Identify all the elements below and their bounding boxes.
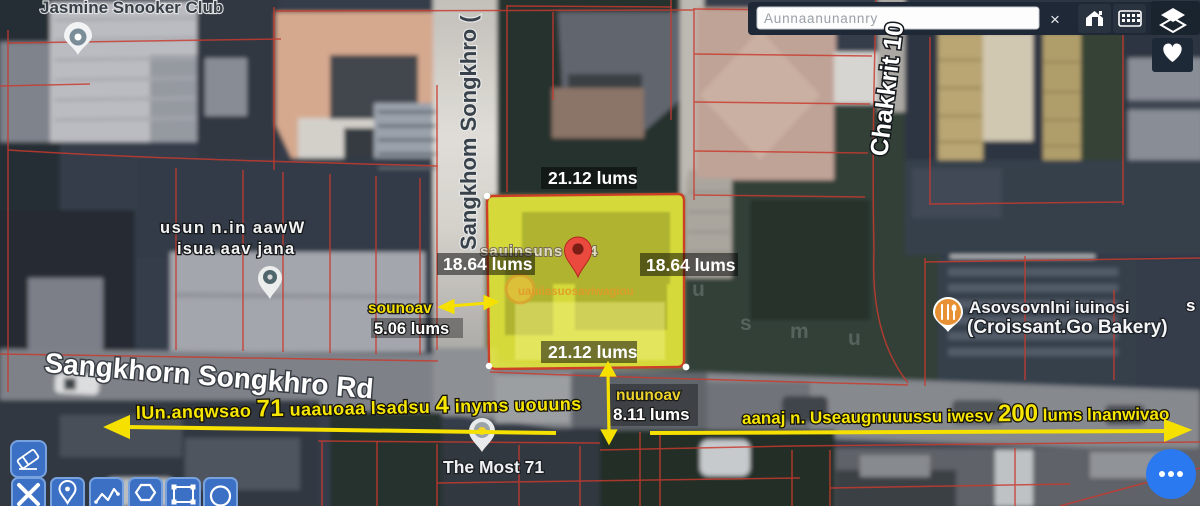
svg-text:isua aav jana: isua aav jana	[177, 240, 295, 258]
svg-text:usun n.in aawW: usun n.in aawW	[160, 219, 306, 237]
svg-text:×: ×	[1050, 10, 1060, 29]
svg-text:21.12 lums: 21.12 lums	[548, 342, 638, 362]
svg-text:nuunoav: nuunoav	[616, 387, 681, 404]
svg-text:18.64 lums: 18.64 lums	[646, 255, 736, 275]
svg-text:uauiiasuosaviwagiou: uauiiasuosaviwagiou	[518, 286, 634, 298]
svg-text:8.11 lums: 8.11 lums	[613, 405, 690, 424]
svg-text:21.12 lums: 21.12 lums	[548, 168, 638, 188]
svg-text:u: u	[692, 278, 705, 301]
svg-text:18.64 lums: 18.64 lums	[443, 254, 533, 274]
svg-text:(Croissant.Go Bakery): (Croissant.Go Bakery)	[967, 317, 1168, 338]
svg-text:5.06 lums: 5.06 lums	[374, 320, 449, 338]
svg-text:s: s	[740, 312, 752, 335]
svg-text:The Most 71: The Most 71	[443, 457, 544, 477]
svg-text:Jasmine Snooker Club: Jasmine Snooker Club	[40, 0, 223, 17]
svg-text:Aunnaanunannry: Aunnaanunannry	[764, 11, 878, 26]
svg-text:s: s	[1186, 296, 1195, 315]
svg-text:sounoav: sounoav	[368, 300, 432, 317]
svg-text:Sangkhom Songkhro (: Sangkhom Songkhro (	[456, 15, 481, 250]
svg-text:u: u	[848, 327, 861, 350]
svg-text:Asovsovnlni iuinosi: Asovsovnlni iuinosi	[969, 298, 1130, 317]
svg-text:m: m	[790, 320, 809, 343]
